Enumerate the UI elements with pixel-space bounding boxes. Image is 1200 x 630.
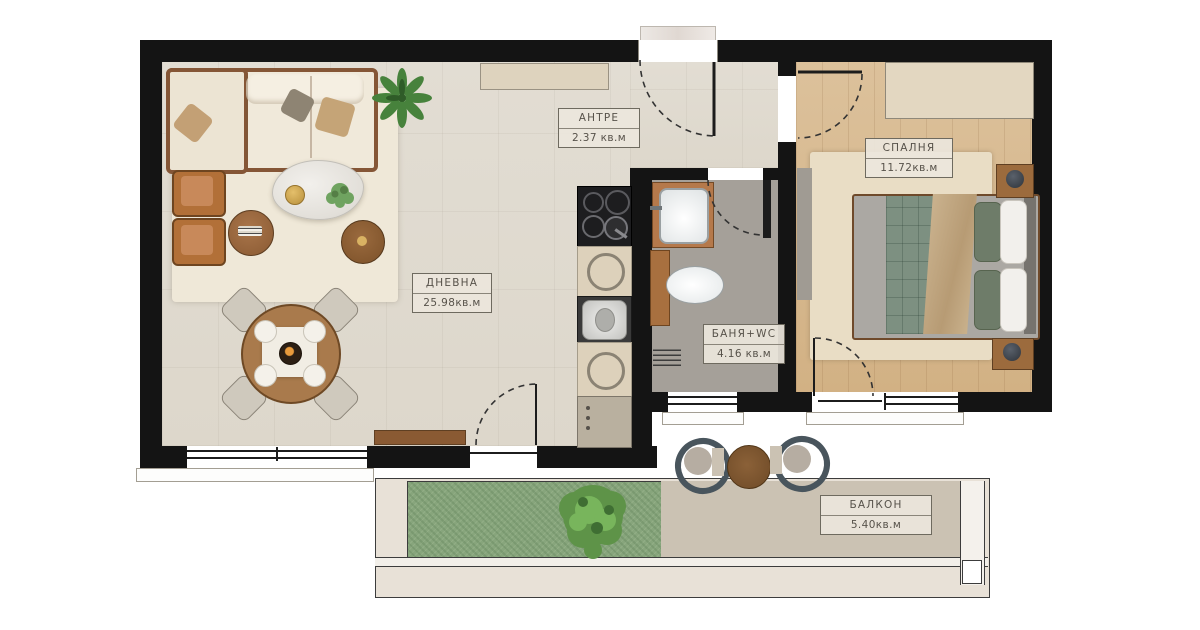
door-leaf-bath	[763, 180, 771, 238]
door-swings-overlay	[0, 0, 1200, 630]
label-bath: БАНЯ+WC 4.16 кв.м	[703, 324, 785, 364]
label-living: ДНЕВНА 25.98кв.м	[412, 273, 492, 313]
door-swing-bath	[708, 180, 763, 235]
balcony-name: БАЛКОН	[821, 496, 931, 516]
bedroom-area: 11.72кв.м	[866, 159, 952, 178]
antre-name: АНТРЕ	[559, 109, 639, 129]
living-name: ДНЕВНА	[413, 274, 491, 294]
label-balcony: БАЛКОН 5.40кв.м	[820, 495, 932, 535]
door-swing-entrance	[640, 60, 716, 136]
label-bedroom: СПАЛНЯ 11.72кв.м	[865, 138, 953, 178]
door-swing-living-balcony	[476, 384, 537, 445]
door-swing-bedroom-balcony	[815, 338, 873, 396]
bath-name: БАНЯ+WC	[704, 325, 784, 345]
bedroom-name: СПАЛНЯ	[866, 139, 952, 159]
label-antre: АНТРЕ 2.37 кв.м	[558, 108, 640, 148]
antre-area: 2.37 кв.м	[559, 129, 639, 148]
bath-area: 4.16 кв.м	[704, 345, 784, 364]
balcony-area: 5.40кв.м	[821, 516, 931, 535]
floor-plan: АНТРЕ 2.37 кв.м ДНЕВНА 25.98кв.м БАНЯ+WC…	[0, 0, 1200, 630]
living-area: 25.98кв.м	[413, 294, 491, 313]
door-swing-bedroom	[798, 74, 862, 138]
